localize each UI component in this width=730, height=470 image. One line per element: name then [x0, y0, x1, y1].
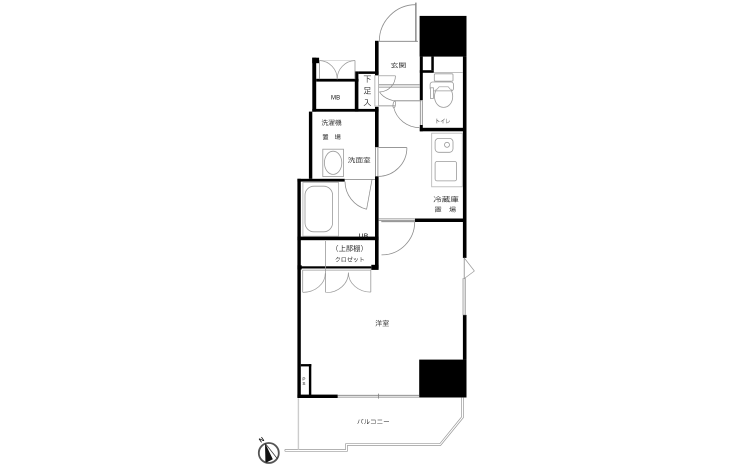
svg-text:S: S — [302, 381, 305, 386]
svg-text:MB: MB — [331, 95, 340, 101]
svg-text:UB: UB — [359, 233, 369, 240]
